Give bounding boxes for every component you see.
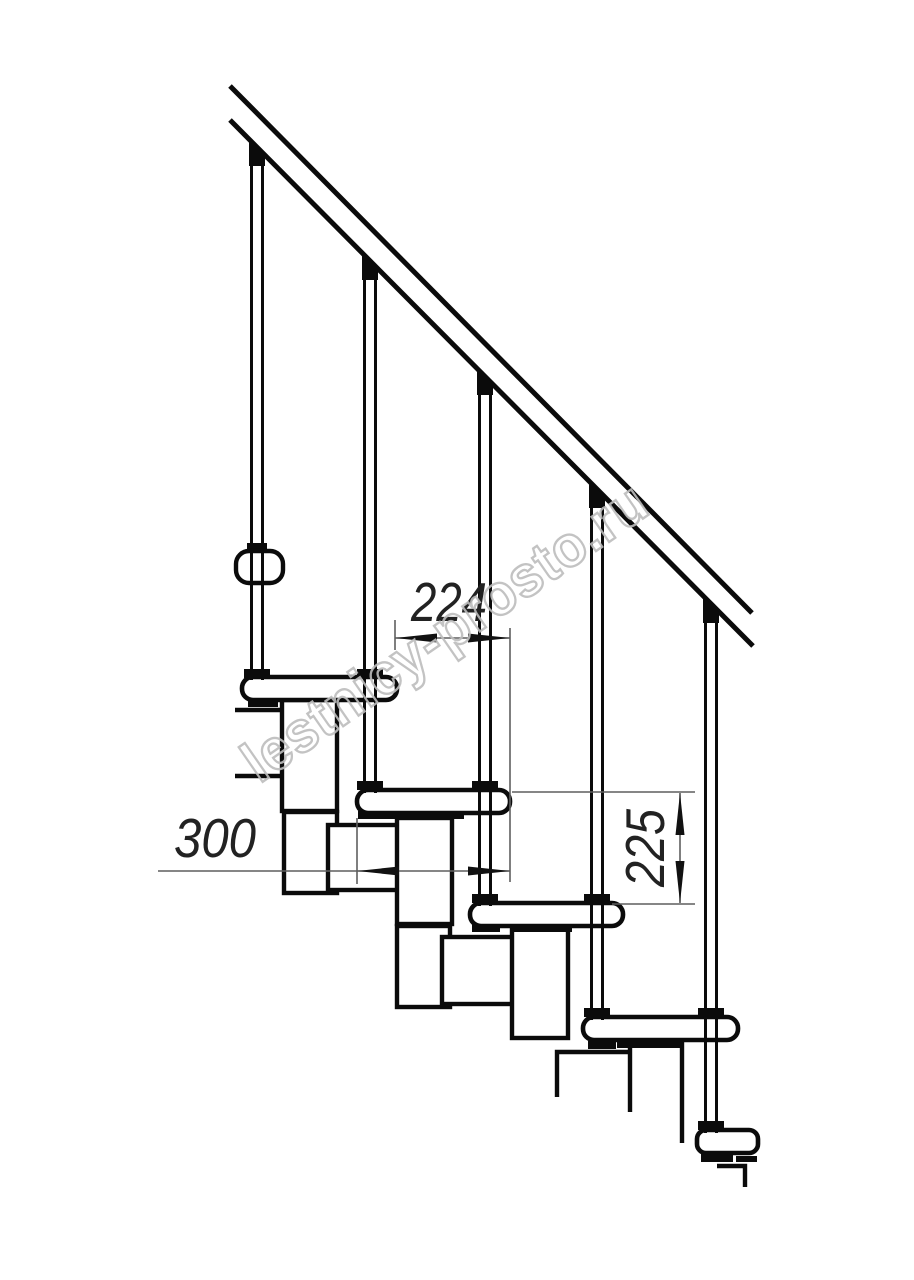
pad-t4 <box>588 1041 616 1049</box>
staircase-technical-drawing: 224 300 225 lestnicy-prosto.ru <box>0 0 914 1280</box>
collar-t4-b4 <box>584 1008 610 1017</box>
tread-5-partial <box>697 1130 758 1153</box>
module3-connector-box <box>442 937 518 1004</box>
collar-t5-b5 <box>698 1121 724 1130</box>
pad-t2 <box>358 811 388 819</box>
joint-band-t3 <box>512 925 572 932</box>
joint-band-t5 <box>736 1156 757 1162</box>
tread-3 <box>470 903 623 926</box>
collar-t2-b2 <box>357 781 383 790</box>
module3-upper-box <box>512 928 568 1038</box>
pad-t1 <box>248 699 278 707</box>
module4-connector-partial <box>557 1052 632 1097</box>
collar-t2-b3 <box>472 781 498 790</box>
dim-label-300: 300 <box>174 807 256 869</box>
collar-t1-b1 <box>244 669 270 678</box>
collar-t4-b5 <box>698 1008 724 1017</box>
joint-band-t2 <box>388 812 464 819</box>
pad-t5 <box>701 1154 733 1162</box>
tread-4 <box>583 1017 738 1040</box>
drawing-canvas: 224 300 225 lestnicy-prosto.ru <box>0 0 914 1280</box>
tread-2 <box>357 790 510 813</box>
pad-t3 <box>472 924 500 932</box>
collar-t3-b3 <box>472 894 498 903</box>
dim-label-225: 225 <box>614 809 676 888</box>
arrow-up-icon <box>676 793 685 835</box>
module5-partial <box>717 1166 745 1187</box>
arrow-down-icon <box>676 861 685 903</box>
collar-t3-b4 <box>584 894 610 903</box>
module2-connector-box <box>328 825 403 890</box>
joint-band-t4 <box>617 1040 683 1048</box>
